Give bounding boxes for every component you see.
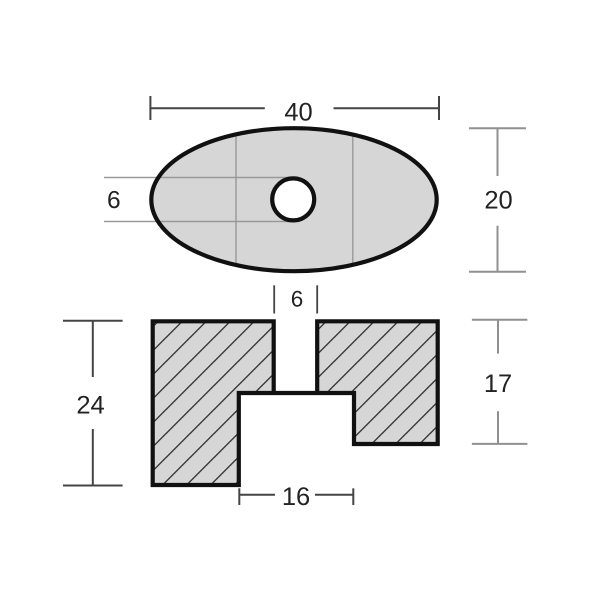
svg-text:20: 20 bbox=[484, 187, 512, 215]
svg-text:24: 24 bbox=[76, 392, 104, 420]
svg-text:17: 17 bbox=[484, 370, 512, 398]
svg-text:40: 40 bbox=[284, 99, 312, 127]
svg-text:16: 16 bbox=[282, 483, 310, 511]
svg-text:6: 6 bbox=[291, 286, 304, 311]
svg-text:6: 6 bbox=[107, 187, 121, 214]
